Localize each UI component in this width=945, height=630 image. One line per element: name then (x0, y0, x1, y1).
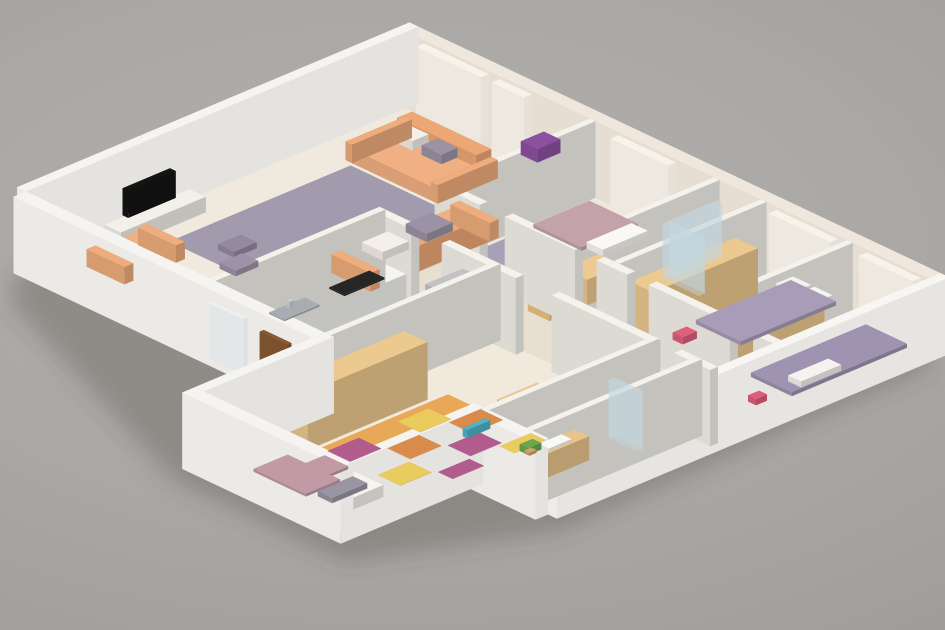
floorplan-3d-render (0, 0, 945, 630)
apartment-model (14, 22, 945, 543)
render-viewport (0, 0, 945, 630)
kitchen-faucet (287, 299, 294, 309)
shower2-glass (609, 377, 643, 451)
